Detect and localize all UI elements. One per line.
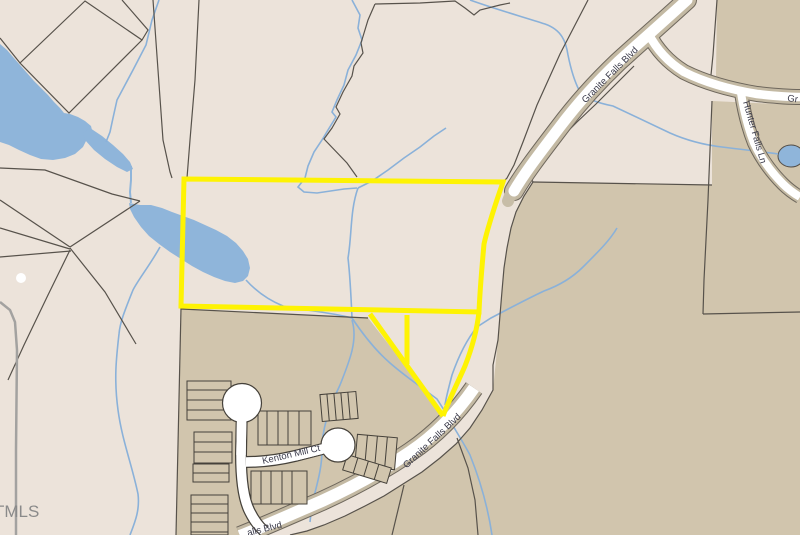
svg-text:Gr: Gr (787, 93, 799, 105)
svg-text:TMLS: TMLS (0, 502, 39, 521)
